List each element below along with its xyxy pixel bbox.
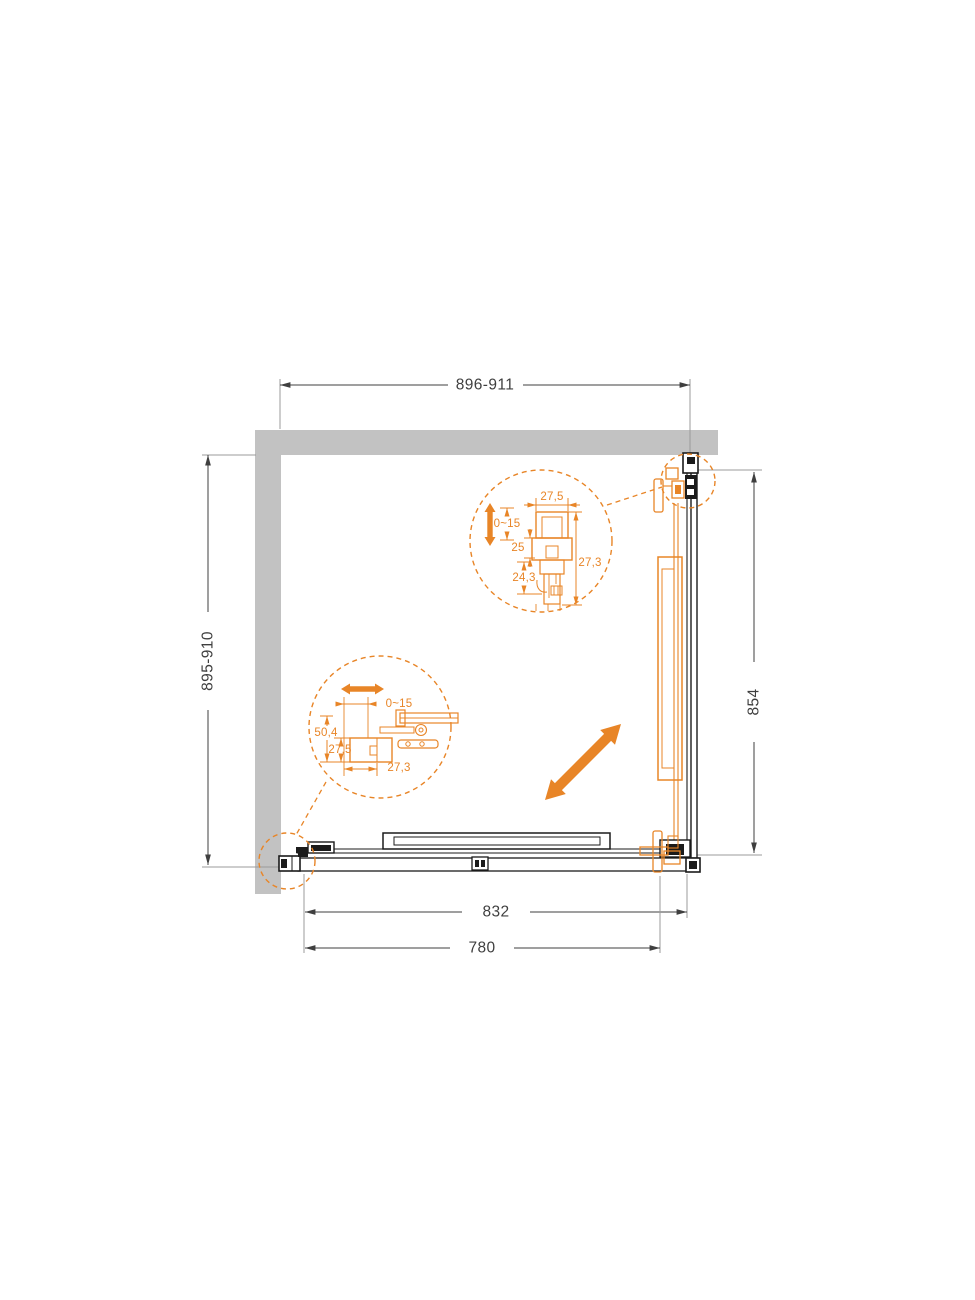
dim-label-bottom-outer: 832 xyxy=(482,904,509,921)
dim-label-left-depth: 895-910 xyxy=(200,631,217,691)
leader-line-bottom xyxy=(296,782,326,835)
detail-label-27-5-bottom: 27,5 xyxy=(328,744,351,756)
dim-label-bottom-inner: 780 xyxy=(468,940,495,957)
wall-left xyxy=(255,430,281,894)
detail-bottom-dimensions: 0~15 50,4 27,5 27,3 xyxy=(314,698,412,776)
slide-direction-arrow-icon xyxy=(545,724,621,800)
sliding-door-panel-right xyxy=(658,503,682,845)
corner-roller-top-right xyxy=(654,468,684,512)
detail-label-50-4: 50,4 xyxy=(314,727,338,739)
detail-circle-bottom: 0~15 50,4 27,5 27,3 xyxy=(259,656,458,889)
detail-label-27-3-top: 27,3 xyxy=(578,557,601,569)
profile-section-top xyxy=(532,512,572,611)
dim-label-right-height: 854 xyxy=(746,688,763,715)
walls xyxy=(255,430,718,894)
page: 896-911 895-910 854 832 780 xyxy=(0,0,975,1300)
detail-label-adjustment-top: 0~15 xyxy=(494,518,521,530)
fixed-glass-panel-right xyxy=(687,455,697,867)
detail-label-27-3-bottom: 27,3 xyxy=(387,762,410,774)
sliding-door-panel-bottom xyxy=(383,833,610,849)
detail-top-dimensions: 27,5 0~15 25 24,3 27,3 xyxy=(494,491,602,605)
detail-label-25: 25 xyxy=(511,542,524,554)
dim-label-top-width: 896-911 xyxy=(456,377,515,394)
detail-label-adjustment-bottom: 0~15 xyxy=(386,698,413,710)
horizontal-adjustment-arrow-icon xyxy=(341,684,384,695)
center-guide-bracket xyxy=(472,857,488,870)
bottom-rail-assembly xyxy=(297,849,698,871)
detail-label-24-3: 24,3 xyxy=(512,572,535,584)
shower-enclosure-plan-drawing: 896-911 895-910 854 832 780 xyxy=(0,0,975,1300)
wall-top xyxy=(255,430,718,455)
detail-label-profile-width: 27,5 xyxy=(540,491,563,503)
dim-bottom-outer: 832 xyxy=(305,874,687,921)
dim-right-height: 854 xyxy=(697,470,763,855)
wall-profile-top-right xyxy=(683,453,698,499)
